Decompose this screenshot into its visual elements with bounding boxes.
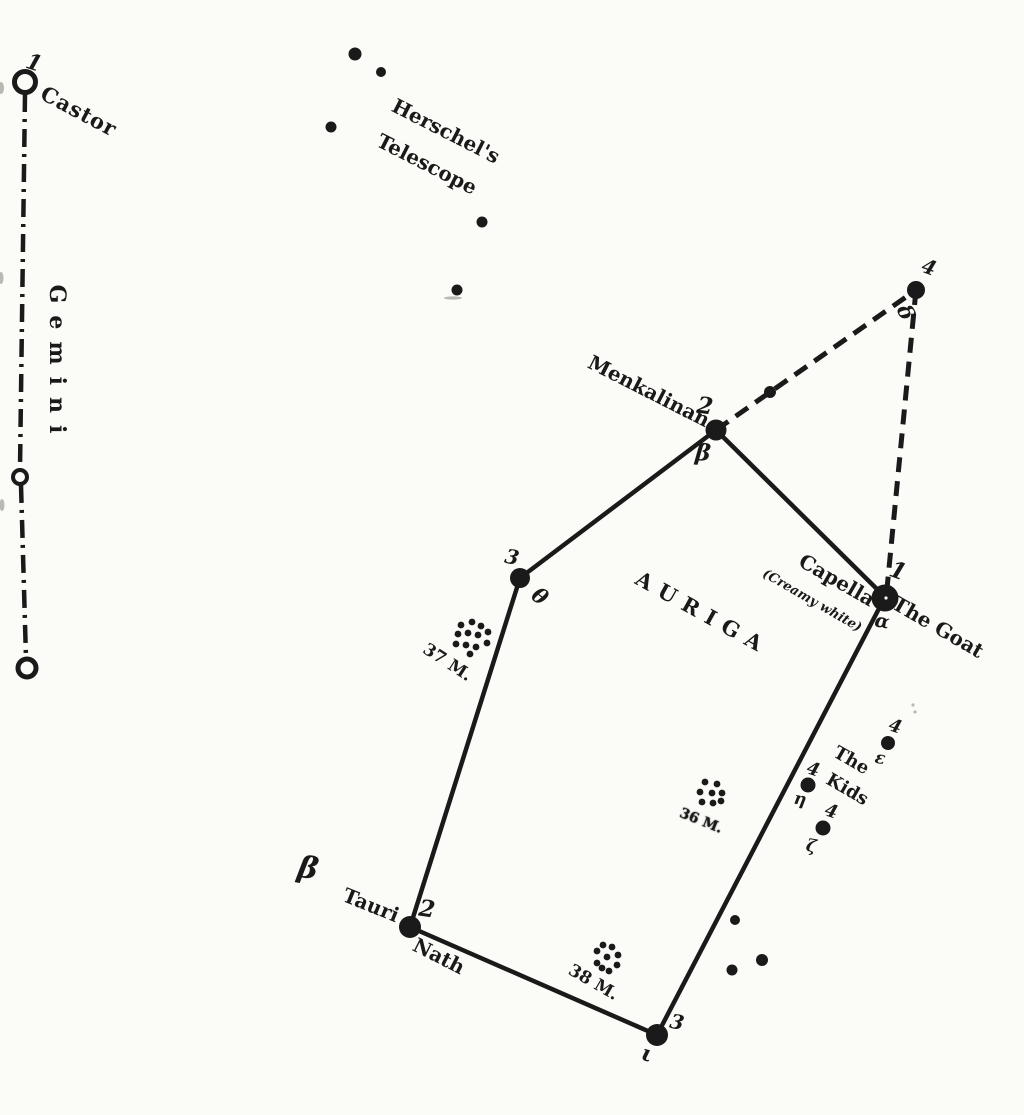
gemini-stars xyxy=(13,72,36,678)
gemini-constellation-label: Gemini xyxy=(46,285,68,446)
star-zeta xyxy=(816,821,831,836)
capella-bayer-letter: α xyxy=(873,611,891,632)
star-on-dashed-line xyxy=(764,386,776,398)
star-chart-auriga: 1 Castor Gemini Herschel's Telescope Men… xyxy=(0,0,1024,1115)
cluster-m38 xyxy=(594,942,622,975)
menkalinan-magnitude: 2 xyxy=(695,393,714,418)
nath-magnitude: 2 xyxy=(417,896,436,921)
star-delta xyxy=(907,281,925,299)
star-theta xyxy=(510,568,530,588)
star-menkalinan xyxy=(706,420,727,441)
star-gemini-bottom xyxy=(18,659,36,677)
cluster-m37 xyxy=(453,619,492,658)
field-stars xyxy=(326,48,769,976)
gemini-constellation-line xyxy=(20,94,26,658)
cluster-m36 xyxy=(697,779,726,807)
menkalinan-bayer-letter: β xyxy=(694,441,711,465)
auriga-dashed-lines xyxy=(716,290,916,599)
star-gemini-middle xyxy=(13,470,27,484)
auriga-constellation-lines xyxy=(410,430,885,1035)
